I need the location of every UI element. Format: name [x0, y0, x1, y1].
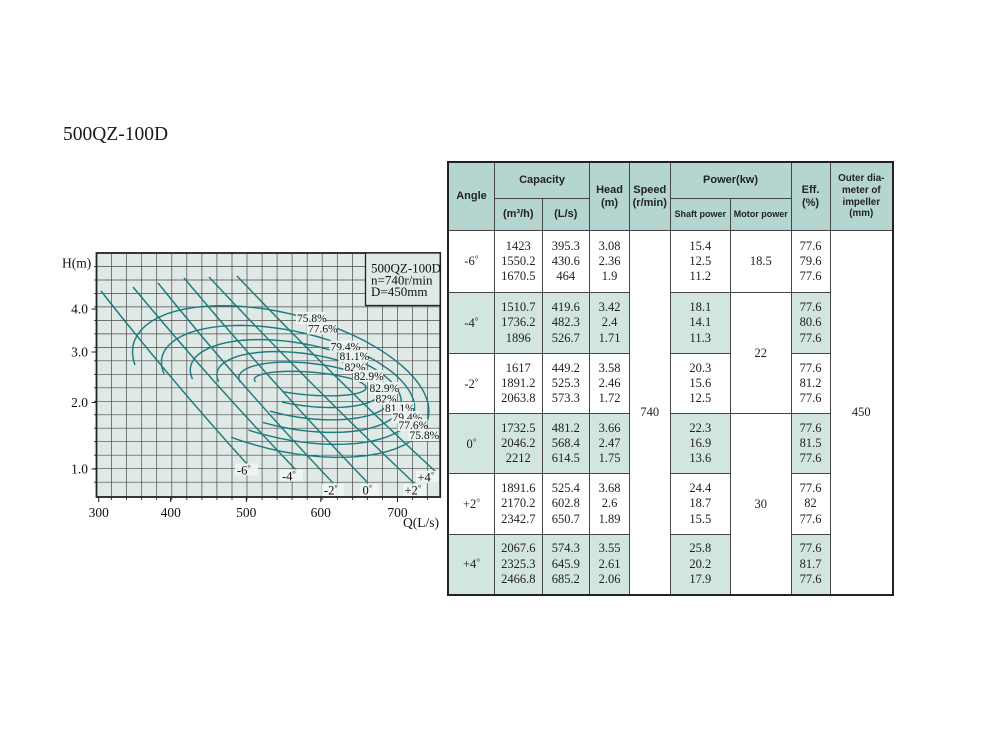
svg-text:75.8%: 75.8%	[410, 430, 440, 442]
svg-text:82.9%: 82.9%	[354, 371, 384, 383]
svg-text:400: 400	[161, 505, 182, 520]
svg-text:4.0: 4.0	[71, 302, 88, 317]
svg-text:H(m): H(m)	[62, 256, 91, 271]
svg-text:77.6%: 77.6%	[308, 324, 338, 336]
svg-text:300: 300	[89, 505, 110, 520]
svg-text:D=450mm: D=450mm	[371, 284, 427, 299]
svg-text:Q(L/s): Q(L/s)	[403, 515, 439, 530]
svg-text:1.0: 1.0	[71, 462, 88, 477]
svg-text:3.0: 3.0	[71, 345, 88, 360]
svg-text:2.0: 2.0	[71, 395, 88, 410]
svg-text:500: 500	[236, 505, 257, 520]
svg-text:600: 600	[311, 505, 332, 520]
